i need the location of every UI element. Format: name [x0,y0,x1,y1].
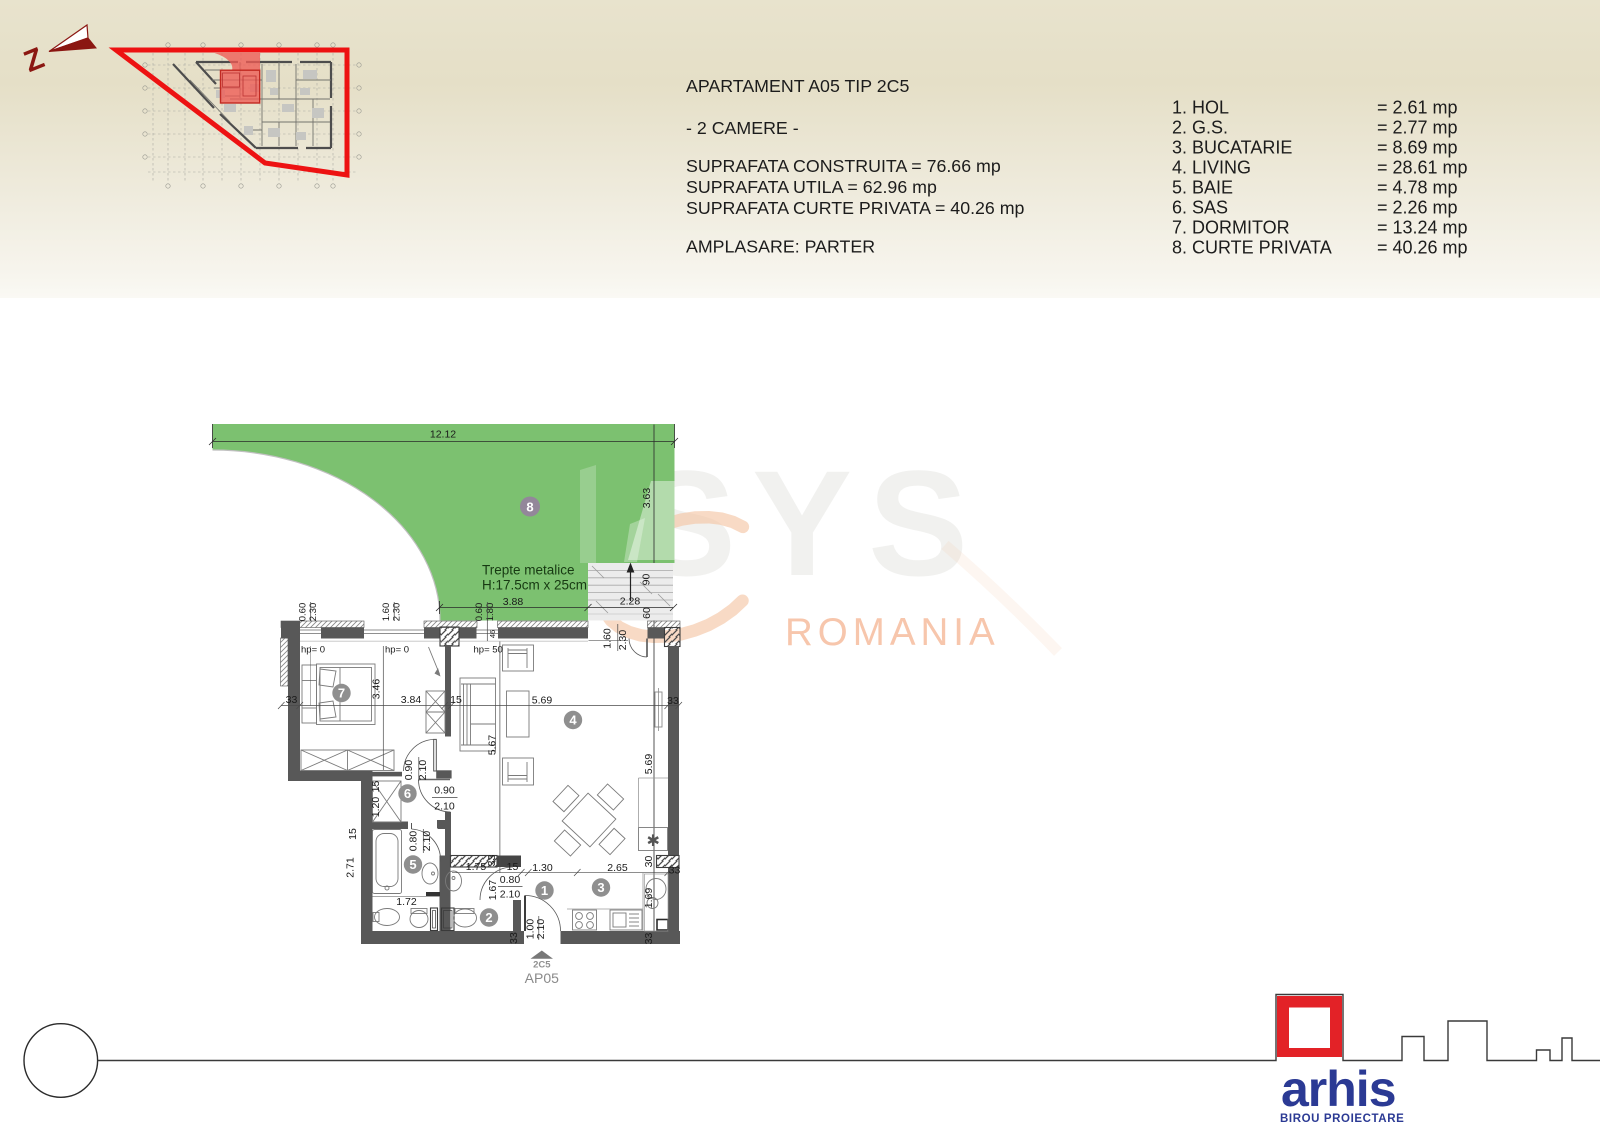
svg-text:1.20: 1.20 [370,797,382,818]
svg-text:AP05: AP05 [525,970,559,986]
svg-text:= 4.78 mp: = 4.78 mp [1377,178,1458,198]
svg-text:1.60: 1.60 [602,628,614,649]
svg-text:1.80: 1.80 [485,603,496,622]
svg-text:2: 2 [485,910,492,925]
svg-text:3.88: 3.88 [503,596,524,608]
svg-text:0.60: 0.60 [474,603,485,622]
svg-text:SUPRAFATA CONSTRUITA = 76.66 m: SUPRAFATA CONSTRUITA = 76.66 mp [686,156,1001,176]
svg-text:15: 15 [347,828,359,840]
svg-text:60: 60 [641,607,653,619]
svg-text:AMPLASARE: PARTER: AMPLASARE: PARTER [686,237,875,257]
svg-text:2. G.S.: 2. G.S. [1172,118,1228,138]
svg-text:7: 7 [338,686,345,701]
svg-text:33: 33 [643,933,655,945]
svg-text:arhis: arhis [1281,1061,1396,1117]
svg-text:4: 4 [569,713,577,728]
svg-text:= 40.26 mp: = 40.26 mp [1377,238,1468,258]
svg-text:12.12: 12.12 [430,429,456,441]
svg-text:90: 90 [641,574,653,586]
svg-text:3.63: 3.63 [641,488,653,509]
svg-text:15: 15 [370,781,382,793]
svg-text:2.10: 2.10 [500,889,521,901]
svg-text:3. BUCATARIE: 3. BUCATARIE [1172,138,1292,158]
svg-text:6. SAS: 6. SAS [1172,198,1228,218]
svg-text:1.72: 1.72 [396,896,417,908]
svg-text:0.60: 0.60 [298,603,309,622]
svg-text:= 2.77 mp: = 2.77 mp [1377,118,1458,138]
svg-text:1.67: 1.67 [487,880,499,901]
svg-text:5.69: 5.69 [643,754,655,775]
svg-text:4. LIVING: 4. LIVING [1172,158,1251,178]
svg-text:hp= 0: hp= 0 [385,645,409,656]
svg-text:1: 1 [541,883,548,898]
svg-text:1.30: 1.30 [532,862,553,874]
svg-text:0.90: 0.90 [434,785,455,797]
svg-text:- 2 CAMERE -: - 2 CAMERE - [686,118,799,138]
svg-text:2.10: 2.10 [421,831,433,852]
svg-text:H:17.5cm x 25cm: H:17.5cm x 25cm [482,578,587,593]
svg-text:8. CURTE PRIVATA: 8. CURTE PRIVATA [1172,238,1332,258]
svg-text:0.80: 0.80 [500,874,521,886]
svg-text:7. DORMITOR: 7. DORMITOR [1172,218,1290,238]
svg-text:15: 15 [450,694,462,706]
svg-text:= 28.61 mp: = 28.61 mp [1377,158,1468,178]
svg-text:33: 33 [286,694,298,706]
svg-text:33: 33 [486,855,498,867]
svg-text:= 2.61 mp: = 2.61 mp [1377,98,1458,118]
svg-text:0.90: 0.90 [403,760,415,781]
svg-text:2C5: 2C5 [533,960,551,971]
svg-text:1.60: 1.60 [381,603,392,622]
svg-text:hp= 0: hp= 0 [301,645,325,656]
svg-text:1.69: 1.69 [643,888,655,909]
svg-text:SUPRAFATA UTILA = 62.96 mp: SUPRAFATA UTILA = 62.96 mp [686,177,937,197]
svg-text:46: 46 [488,630,497,638]
svg-text:2.65: 2.65 [607,862,628,874]
svg-text:hp= 50: hp= 50 [474,645,503,656]
svg-text:1.75: 1.75 [466,861,487,873]
svg-text:APARTAMENT A05 TIP 2C5: APARTAMENT A05 TIP 2C5 [686,76,909,96]
svg-text:2.30: 2.30 [308,603,319,622]
svg-text:6: 6 [404,786,411,801]
svg-text:5.69: 5.69 [532,695,553,707]
svg-text:= 13.24 mp: = 13.24 mp [1377,218,1468,238]
svg-text:= 8.69 mp: = 8.69 mp [1377,138,1458,158]
svg-text:1. HOL: 1. HOL [1172,98,1229,118]
svg-text:Trepte metalice: Trepte metalice [482,563,575,578]
svg-text:3.46: 3.46 [371,679,383,700]
svg-text:BIROU PROIECTARE: BIROU PROIECTARE [1280,1113,1404,1125]
svg-text:SUPRAFATA CURTE PRIVATA = 40.2: SUPRAFATA CURTE PRIVATA = 40.26 mp [686,198,1025,218]
svg-text:0.80: 0.80 [408,831,420,852]
svg-text:3: 3 [597,880,604,895]
svg-text:30: 30 [643,856,655,868]
svg-text:2.30: 2.30 [392,603,403,622]
svg-text:33: 33 [667,695,679,707]
svg-text:5.67: 5.67 [487,735,499,756]
svg-text:33: 33 [508,932,520,944]
svg-text:✱: ✱ [647,833,660,850]
svg-text:33: 33 [669,865,681,877]
svg-text:5: 5 [409,857,416,872]
svg-text:= 2.26 mp: = 2.26 mp [1377,198,1458,218]
svg-text:2.71: 2.71 [345,857,357,878]
svg-text:2.28: 2.28 [620,596,641,608]
svg-text:ROMANIA: ROMANIA [785,611,1000,654]
svg-text:2.30: 2.30 [617,630,629,651]
svg-text:8: 8 [526,499,533,514]
svg-text:5. BAIE: 5. BAIE [1172,178,1233,198]
svg-text:15: 15 [507,861,519,873]
svg-text:3.84: 3.84 [401,694,422,706]
svg-text:2.10: 2.10 [434,801,455,813]
svg-text:2.10: 2.10 [535,919,547,940]
